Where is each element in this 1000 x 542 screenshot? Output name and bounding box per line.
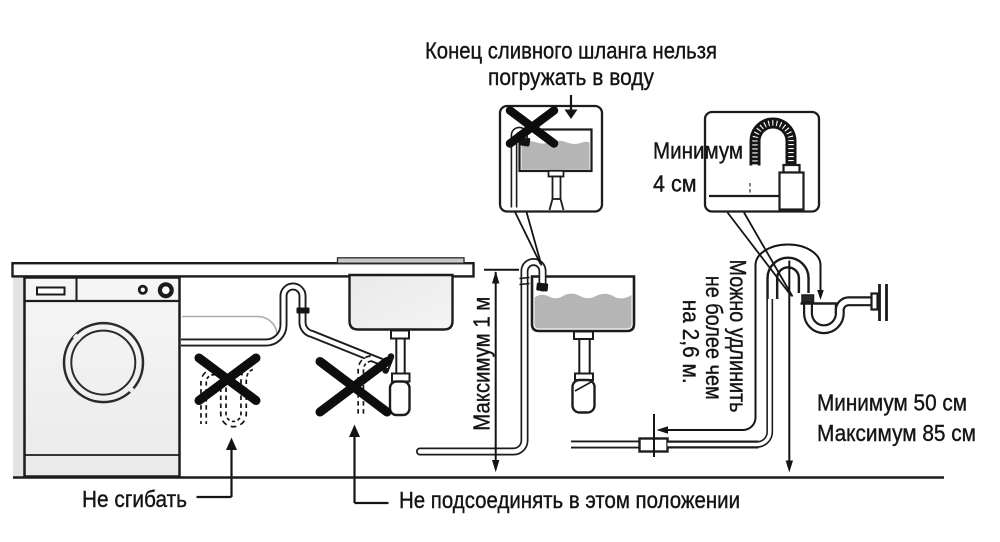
svg-text:на 2,6 м.: на 2,6 м. (678, 300, 704, 384)
svg-text:Максимум 1 м: Максимум 1 м (469, 297, 495, 431)
svg-text:Конец сливного шланга нельзя: Конец сливного шланга нельзя (425, 37, 717, 63)
svg-text:Можно удлинить: Можно удлинить (725, 260, 751, 413)
svg-text:Не сгибать: Не сгибать (82, 486, 187, 512)
svg-text:Не подсоединять в этом положен: Не подсоединять в этом положении (399, 487, 740, 513)
svg-text:Минимум: Минимум (653, 138, 743, 164)
svg-text:погружать в воду: погружать в воду (488, 64, 654, 90)
svg-text:Минимум 50 см: Минимум 50 см (817, 390, 967, 416)
svg-text:Максимум 85 см: Максимум 85 см (817, 420, 976, 446)
svg-text:4 см: 4 см (653, 170, 697, 196)
